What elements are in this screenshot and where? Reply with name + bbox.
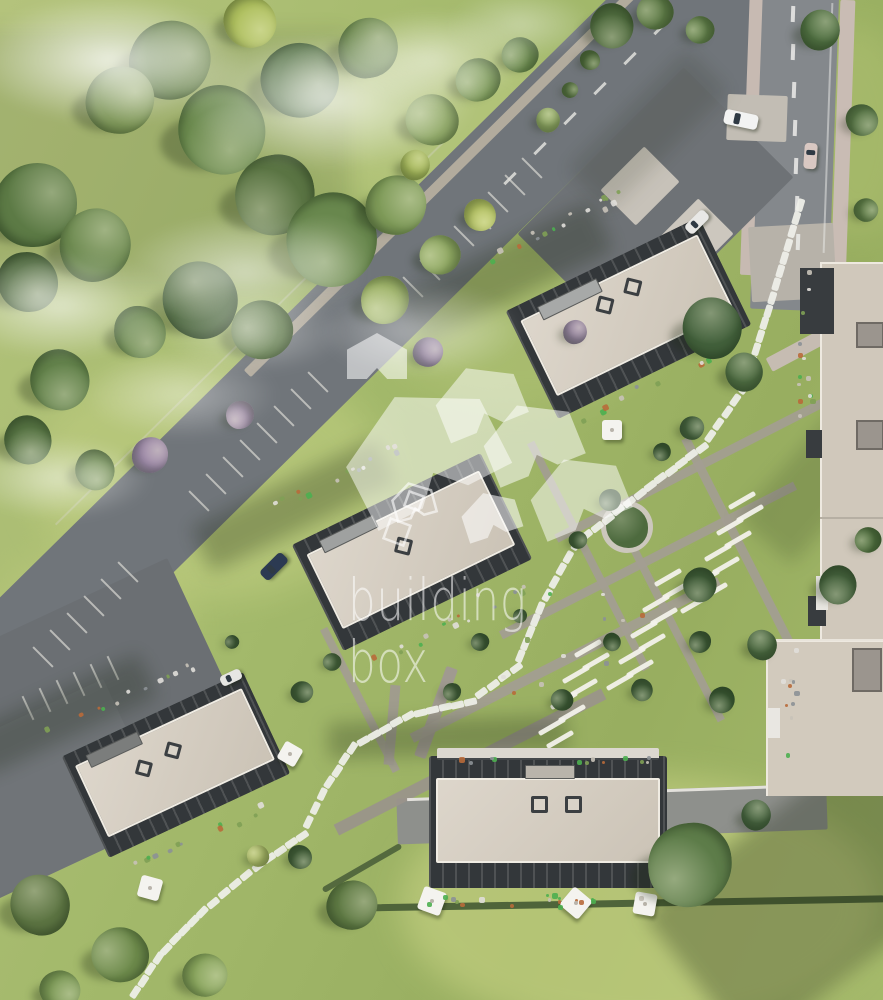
- watermark-text-line2: box: [348, 633, 429, 691]
- logo-house-icon: [462, 493, 524, 543]
- aerial-site-render: building box: [0, 0, 883, 1000]
- watermark-text-line1: building: [348, 571, 527, 629]
- logo-house-icon: [531, 460, 633, 542]
- watermark-logo: [0, 0, 883, 1000]
- logo-house-icon: [347, 333, 407, 379]
